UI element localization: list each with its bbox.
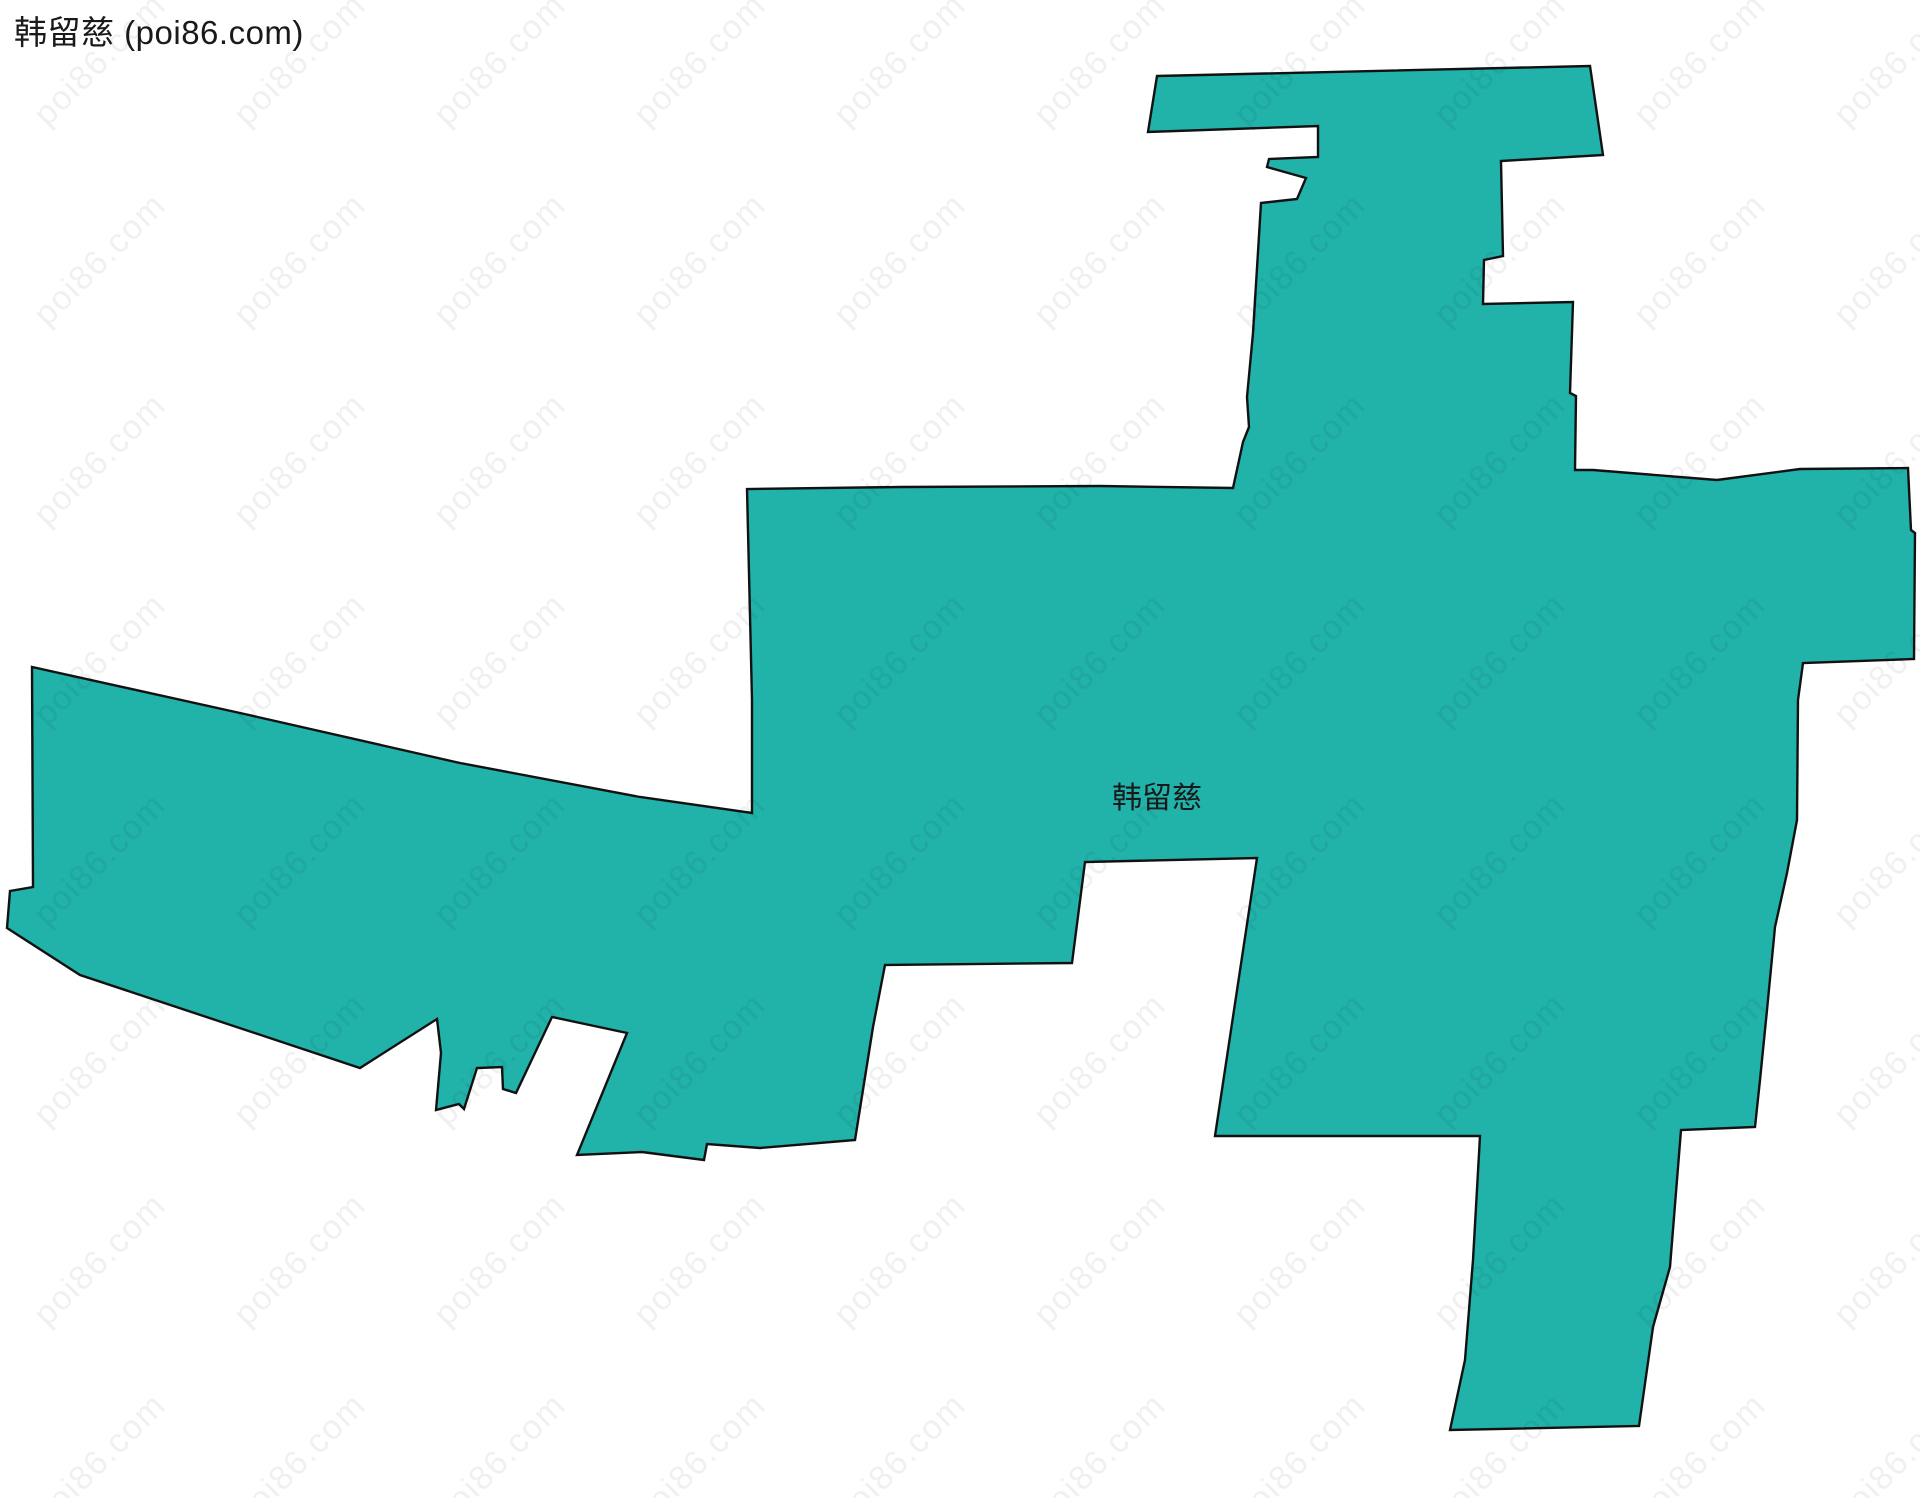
map-page: 韩留慈 (poi86.com) poi86.compoi86.compoi86.… (0, 0, 1920, 1498)
district-map (0, 0, 1920, 1498)
page-title: 韩留慈 (poi86.com) (14, 6, 304, 54)
region-boundary (7, 66, 1915, 1430)
region-label: 韩留慈 (1112, 773, 1202, 817)
